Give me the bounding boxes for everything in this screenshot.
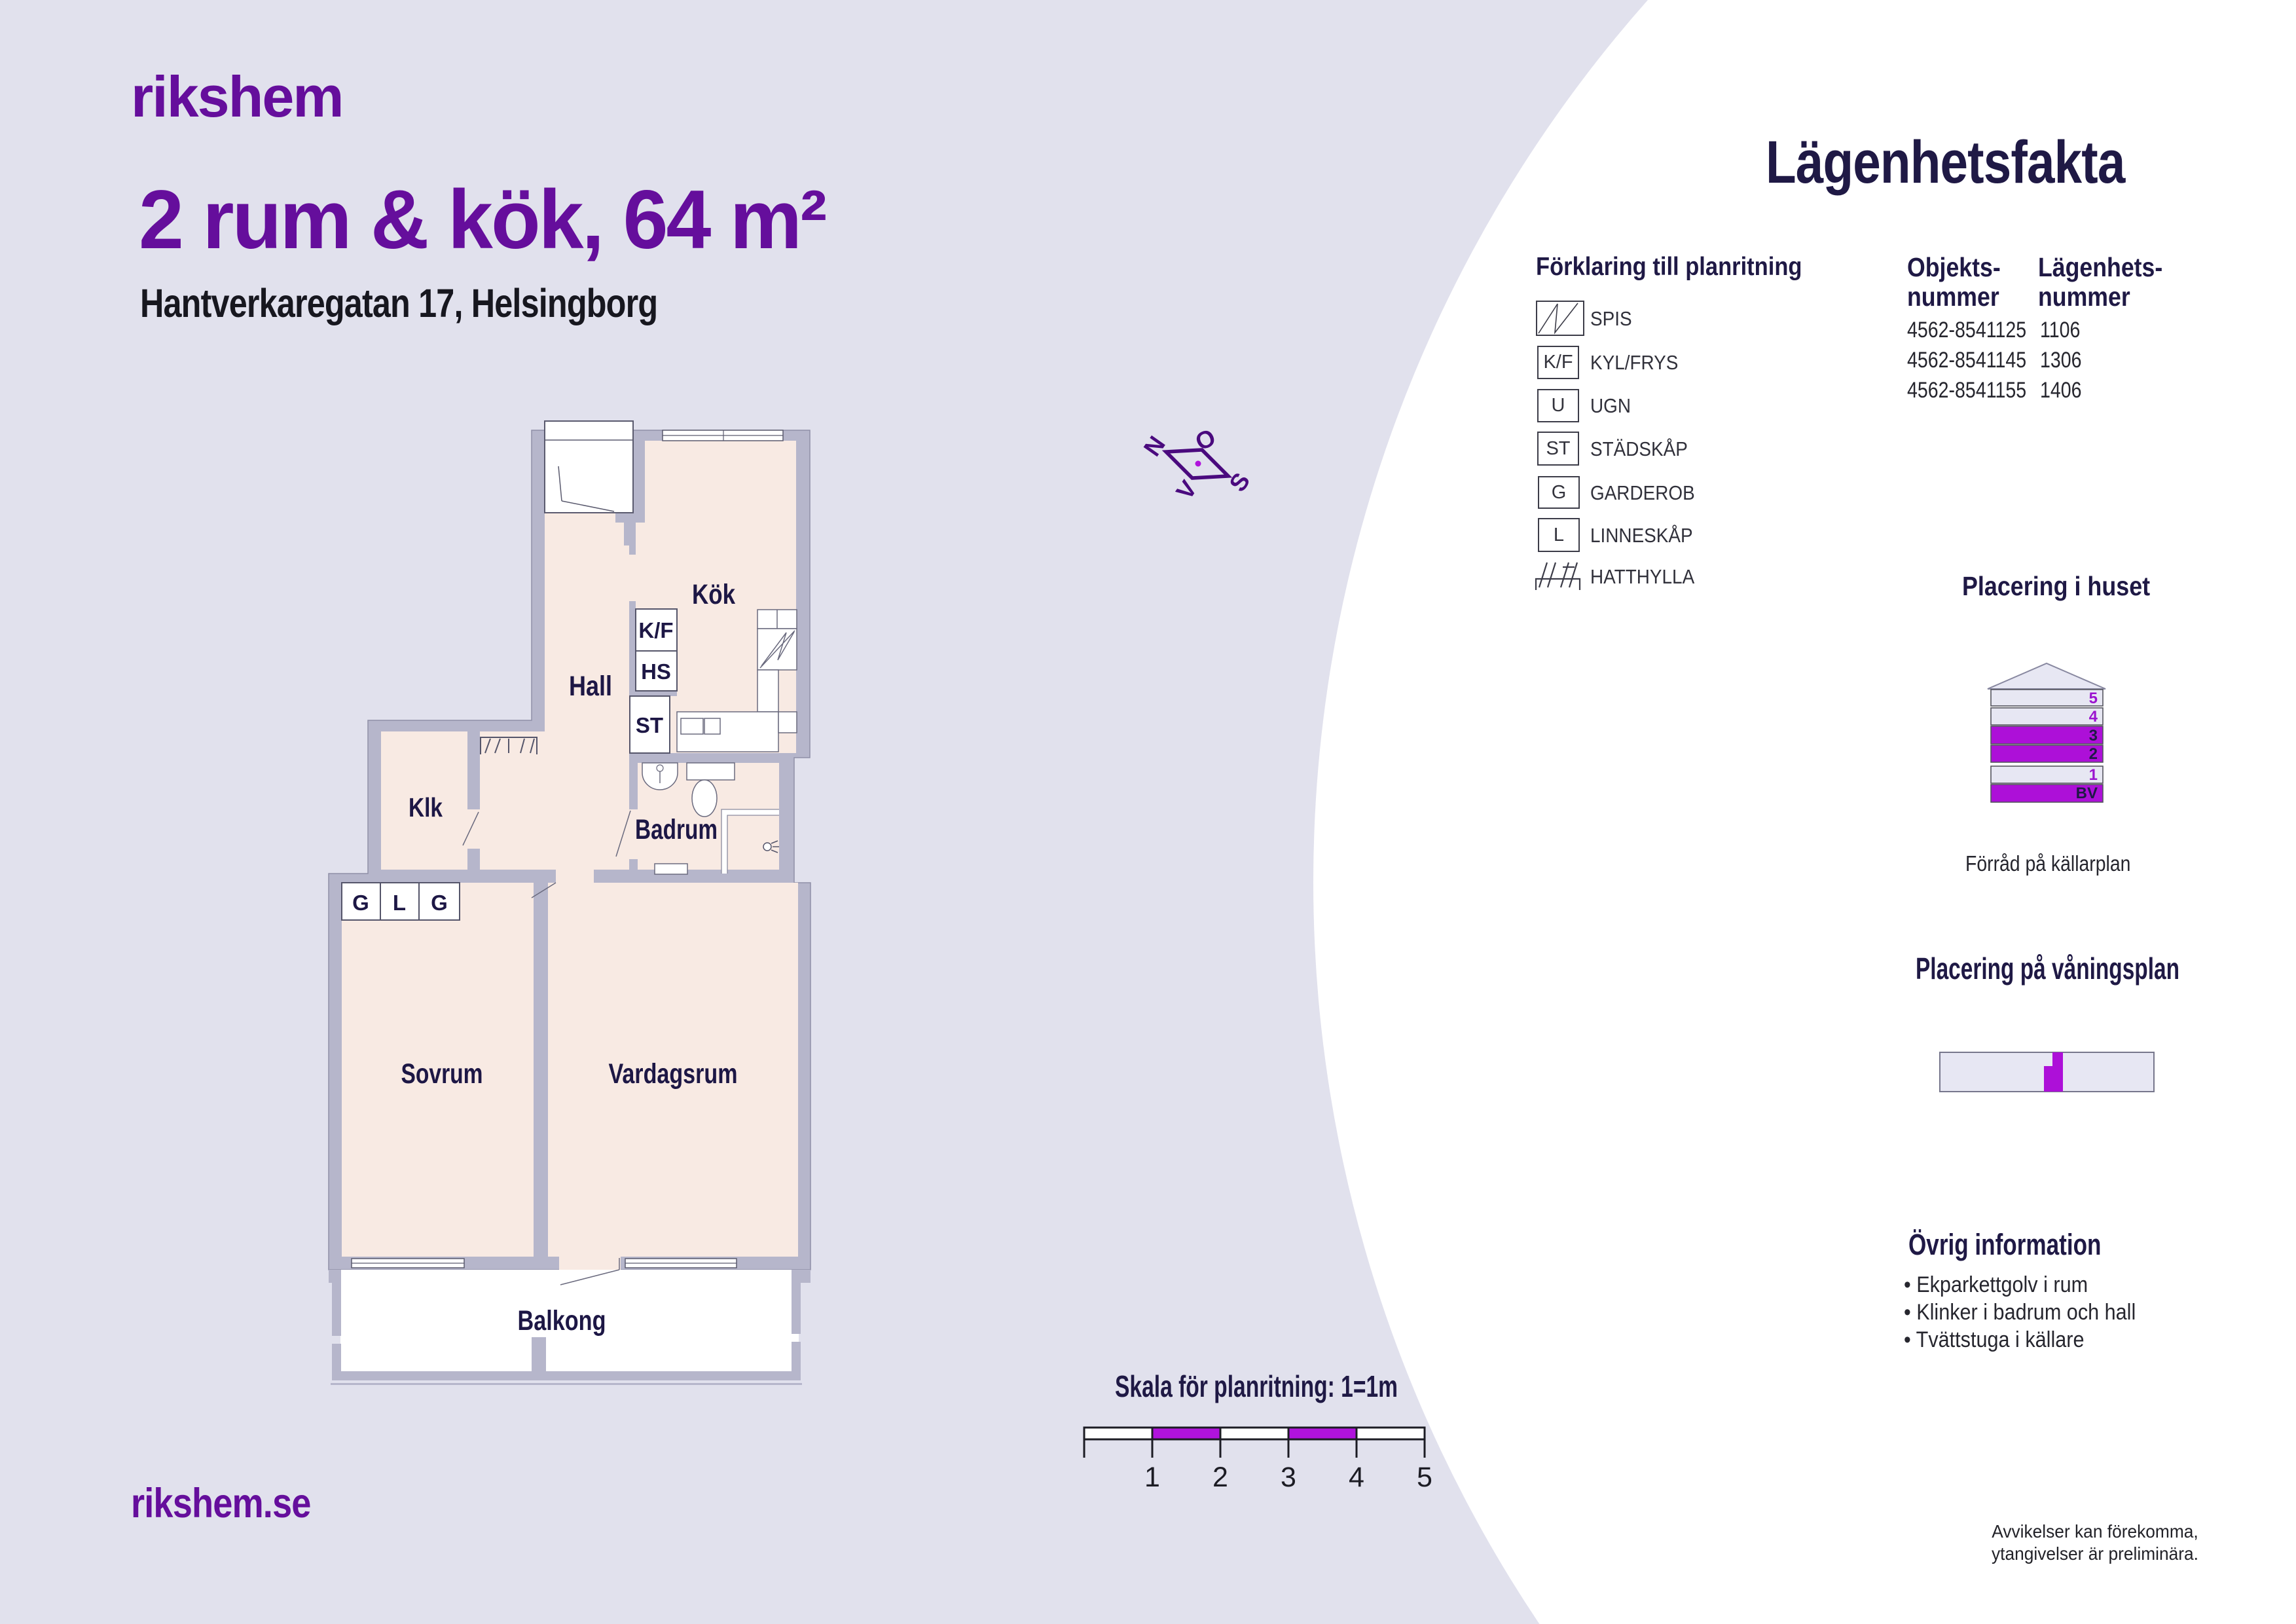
svg-text:Balkong: Balkong: [518, 1305, 606, 1337]
svg-text:Skala för planritning: 1=1m: Skala för planritning: 1=1m: [1115, 1369, 1398, 1403]
svg-text:5: 5: [2089, 690, 2098, 707]
svg-text:G: G: [431, 891, 448, 915]
svg-text:5: 5: [1417, 1462, 1432, 1493]
svg-text:4: 4: [1349, 1462, 1364, 1493]
svg-text:V: V: [1171, 475, 1203, 504]
svg-text:Badrum: Badrum: [635, 814, 718, 845]
svg-text:2: 2: [1212, 1462, 1228, 1493]
svg-text:1: 1: [1144, 1462, 1160, 1493]
svg-text:ST: ST: [636, 713, 663, 737]
svg-text:1: 1: [2089, 766, 2098, 784]
svg-text:Sovrum: Sovrum: [401, 1058, 483, 1090]
svg-text:Klk: Klk: [409, 792, 443, 822]
svg-text:K/F: K/F: [638, 618, 673, 642]
svg-text:Hall: Hall: [569, 671, 612, 702]
svg-text:HS: HS: [641, 659, 671, 684]
svg-text:N: N: [1139, 432, 1171, 461]
svg-text:3: 3: [1281, 1462, 1296, 1493]
svg-text:3: 3: [2089, 727, 2098, 745]
svg-text:BV: BV: [2076, 784, 2098, 802]
svg-text:Vardagsrum: Vardagsrum: [609, 1058, 738, 1090]
svg-text:4: 4: [2089, 708, 2098, 726]
svg-text:S: S: [1224, 468, 1256, 496]
svg-text:G: G: [352, 891, 369, 915]
svg-text:Kök: Kök: [692, 579, 735, 610]
svg-text:2: 2: [2089, 745, 2098, 763]
svg-text:L: L: [393, 891, 406, 915]
